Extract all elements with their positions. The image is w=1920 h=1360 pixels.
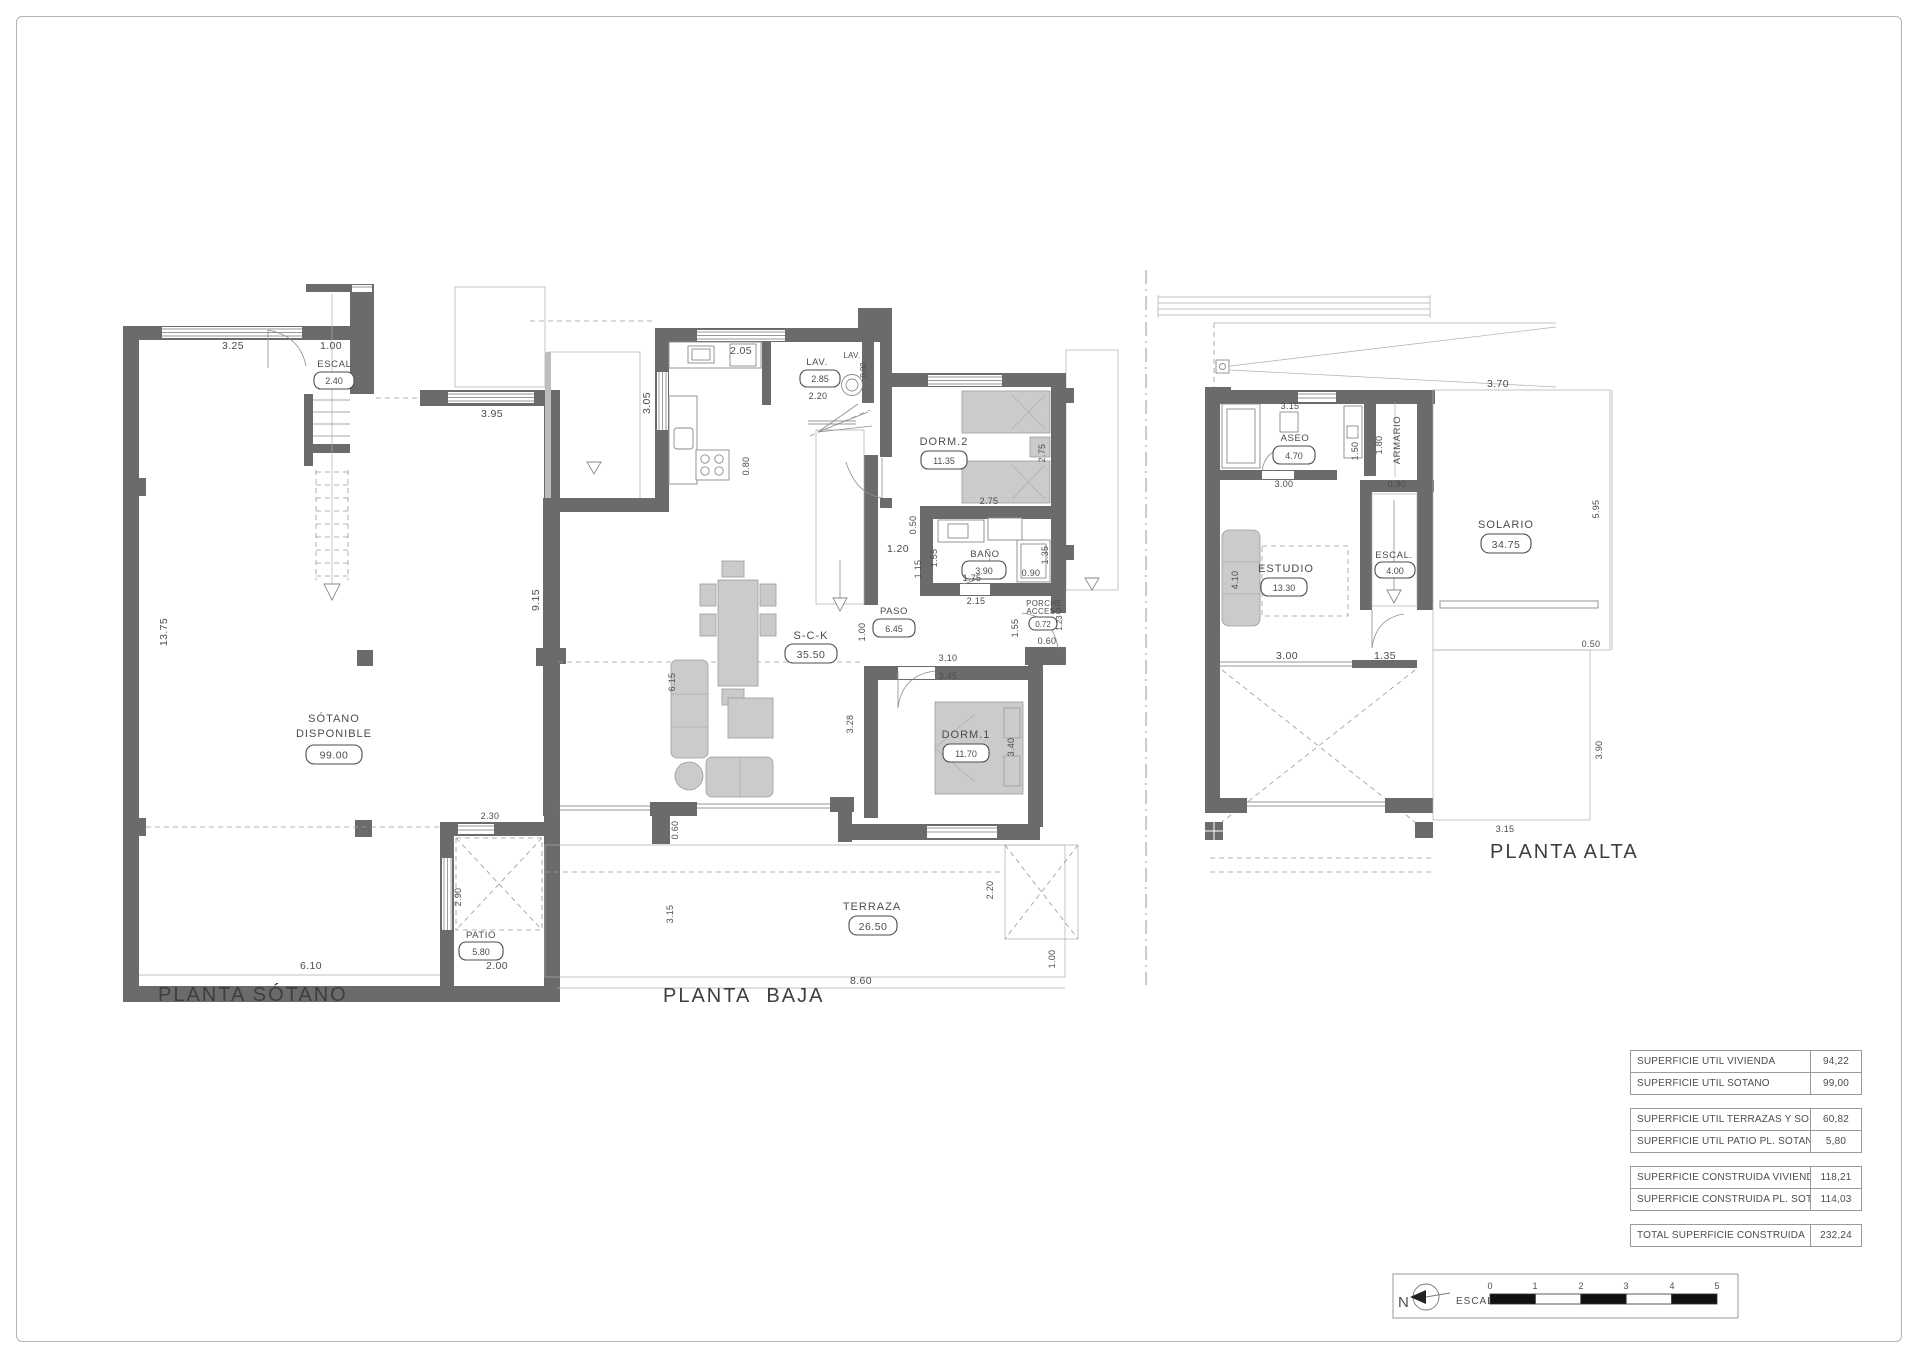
area-value: 0.72 — [1035, 620, 1051, 629]
dining-table — [700, 561, 776, 705]
plan-title-baja: PLANTA BAJA — [663, 985, 824, 1007]
area-value: 99.00 — [320, 750, 349, 762]
dim-label: 6.15 — [667, 673, 677, 692]
table-row-label: SUPERFICIE CONSTRUIDA VIVIENDA — [1631, 1172, 1810, 1183]
room-label-escal: ESCAL. — [1375, 550, 1412, 561]
dim-label: 3.05 — [641, 392, 653, 414]
dim-label: 3.25 — [222, 340, 244, 352]
dim-label: 1.35 — [1040, 546, 1050, 565]
dim-label: 3.95 — [481, 408, 503, 420]
dim-label: 5.95 — [1591, 500, 1601, 519]
dim-label: 9.15 — [530, 589, 542, 611]
table-group-total: TOTAL SUPERFICIE CONSTRUIDA 232,24 — [1630, 1224, 1862, 1247]
dim-label: 2.30 — [481, 811, 500, 821]
dim-label: 3.15 — [665, 905, 675, 924]
side-table — [675, 762, 703, 790]
table-row: SUPERFICIE ÚTIL VIVIENDA 94,22 — [1631, 1051, 1861, 1072]
room-label-lav: LAV. — [806, 357, 827, 368]
dim-label: 3.15 — [1281, 401, 1300, 411]
room-label-acceso: ACCESO — [1026, 607, 1061, 616]
plan-sotano: 3.25 1.00 ESCAL. 2.40 3.95 13.75 9.15 SÓ… — [123, 284, 560, 1006]
surface-areas-table: SUPERFICIE ÚTIL VIVIENDA 94,22 SUPERFICI… — [1630, 1050, 1862, 1260]
room-label-patio: PATIO — [466, 930, 496, 941]
dim-label: 2.15 — [967, 596, 986, 606]
table-row: TOTAL SUPERFICIE CONSTRUIDA 232,24 — [1631, 1225, 1861, 1246]
dim-label: 3.90 — [1594, 741, 1604, 760]
scale-tick: 2 — [1578, 1281, 1583, 1291]
table-group-construida: SUPERFICIE CONSTRUIDA VIVIENDA 118,21 SU… — [1630, 1166, 1862, 1211]
dim-label: 0.60 — [1038, 636, 1057, 646]
dim-label: 0.50 — [908, 516, 918, 535]
area-value: 2.40 — [325, 376, 343, 386]
scale-tick: 1 — [1532, 1281, 1537, 1291]
area-value: 11.70 — [955, 749, 977, 759]
room-label-sck: S-C-K — [794, 630, 829, 642]
column — [1415, 822, 1433, 838]
column — [357, 650, 373, 666]
area-value: 13.30 — [1273, 583, 1296, 593]
dim-label: 1.20 — [887, 543, 909, 555]
area-value: 35.50 — [797, 649, 826, 661]
dim-label: 3.28 — [845, 715, 855, 734]
scale-bar: N ESCALA : 0 1 2 3 4 5 — [1393, 1274, 1738, 1318]
dim-label: 3.45 — [939, 671, 958, 681]
table-row-label: SUPERFICIE CONSTRUIDA PL. SÓTANO — [1631, 1194, 1810, 1205]
dim-label: 1.55 — [929, 549, 939, 568]
dim-label: 2.75 — [980, 496, 999, 506]
graphic-scale — [1490, 1294, 1717, 1304]
dim-label: 2.90 — [453, 888, 463, 907]
dim-label: 0.90 — [1388, 479, 1407, 489]
area-value: 11.35 — [933, 456, 955, 466]
dim-label: 3.15 — [1496, 824, 1515, 834]
dim-label: 1.50 — [1350, 442, 1360, 461]
dim-label: 2.75 — [1037, 444, 1047, 463]
table-row: SUPERFICIE ÚTIL SÓTANO 99,00 — [1631, 1072, 1861, 1094]
area-value: 26.50 — [859, 921, 888, 933]
dim-label: 1.00 — [320, 340, 342, 352]
dim-label: 0.80 — [741, 457, 751, 476]
table-group-exterior: SUPERFICIE ÚTIL TERRAZAS Y SOLARIO 60,82… — [1630, 1108, 1862, 1153]
dim-label: 1.80 — [1374, 436, 1384, 455]
dim-label: 2.05 — [730, 345, 752, 357]
cooktop-icon — [696, 450, 729, 480]
dim-label: 1.00 — [1047, 950, 1057, 969]
room-label-dorm1: DORM.1 — [942, 729, 991, 741]
area-value: 4.00 — [1386, 566, 1404, 576]
table-group-util: SUPERFICIE ÚTIL VIVIENDA 94,22 SUPERFICI… — [1630, 1050, 1862, 1095]
plan-alta: 3.70 3.15 ASEO 4.70 1.50 ARMARIO 1.80 0.… — [1158, 295, 1639, 872]
table-row-label: SUPERFICIE ÚTIL TERRAZAS Y SOLARIO — [1631, 1114, 1810, 1125]
dim-label: 0.90 — [1022, 568, 1041, 578]
room-label-aseo: ASEO — [1281, 433, 1310, 444]
dim-label: 3.40 — [1006, 738, 1016, 757]
roof-edge-lines — [1158, 295, 1430, 318]
area-value: 4.70 — [1285, 451, 1303, 461]
patio-open-hatch — [456, 838, 542, 930]
room-label-solario: SOLARIO — [1478, 519, 1534, 531]
dim-label: 4.10 — [1230, 571, 1240, 590]
room-label-sotano2: DISPONIBLE — [296, 728, 372, 740]
table-row-label: TOTAL SUPERFICIE CONSTRUIDA — [1631, 1230, 1810, 1241]
table-row: SUPERFICIE ÚTIL PATIO PL. SÓTANO 5,80 — [1631, 1130, 1861, 1152]
scale-tick: 0 — [1487, 1281, 1492, 1291]
dim-label: 3.00 — [1275, 479, 1294, 489]
table-row-value: 5,80 — [1810, 1131, 1861, 1152]
table-row-value: 232,24 — [1810, 1225, 1861, 1246]
table-row: SUPERFICIE ÚTIL TERRAZAS Y SOLARIO 60,82 — [1631, 1109, 1861, 1130]
table-row: SUPERFICIE CONSTRUIDA VIVIENDA 118,21 — [1631, 1167, 1861, 1188]
dim-label: 1.15 — [913, 560, 923, 579]
dim-label: 6.10 — [300, 960, 322, 972]
dim-label: 0.80 — [859, 362, 868, 378]
room-label-estudio: ESTUDIO — [1258, 563, 1314, 575]
stair-direction-arrow — [324, 584, 340, 600]
scale-tick: 5 — [1714, 1281, 1719, 1291]
dim-label: 1.35 — [1374, 650, 1396, 662]
table-row-value: 99,00 — [1810, 1073, 1861, 1094]
table-row-value: 118,21 — [1810, 1167, 1861, 1188]
estudio-sofa — [1222, 530, 1260, 626]
room-label-lav2: LAV. — [843, 351, 860, 360]
solario-bench — [1440, 601, 1598, 608]
dim-label: 0.60 — [670, 821, 680, 840]
north-label: N — [1398, 1294, 1410, 1311]
scale-tick: 3 — [1623, 1281, 1628, 1291]
table-row-label: SUPERFICIE ÚTIL PATIO PL. SÓTANO — [1631, 1136, 1810, 1147]
room-label-sotano: SÓTANO — [308, 712, 360, 725]
dim-label: 3.70 — [1487, 378, 1509, 390]
table-row: SUPERFICIE CONSTRUIDA PL. SÓTANO 114,03 — [1631, 1188, 1861, 1210]
dim-label: 3.10 — [939, 653, 958, 663]
room-label-dorm2: DORM.2 — [920, 436, 969, 448]
main-stair — [810, 404, 872, 611]
plan-baja: 2.05 3.05 0.80 LAV. 2.85 2.20 LAV. 0.80 … — [530, 270, 1146, 1007]
room-label-terraza: TERRAZA — [843, 901, 901, 913]
exterior-entry-stair — [548, 352, 640, 504]
table-row-label: SUPERFICIE ÚTIL VIVIENDA — [1631, 1056, 1810, 1067]
dim-label: 1.55 — [1010, 619, 1020, 638]
column — [355, 820, 372, 837]
dim-label: 3.00 — [1276, 650, 1298, 662]
dim-label: 2.20 — [809, 391, 828, 401]
area-value: 6.45 — [885, 624, 903, 634]
solario-deck-lower — [1433, 650, 1590, 820]
room-label-escal: ESCAL. — [317, 359, 354, 370]
table-row-value: 94,22 — [1810, 1051, 1861, 1072]
room-label-bano: BAÑO — [970, 549, 999, 560]
area-value: 34.75 — [1492, 539, 1521, 551]
plan-title-alta: PLANTA ALTA — [1490, 841, 1639, 863]
dim-label: 2.00 — [486, 960, 508, 972]
dim-label: 13.75 — [158, 618, 170, 646]
area-value: 5.80 — [472, 947, 490, 957]
exterior-stair — [455, 287, 545, 387]
dim-label: 1.23 — [1055, 615, 1064, 630]
room-label-armario: ARMARIO — [1392, 416, 1403, 465]
dim-label: 2.20 — [985, 881, 995, 900]
plan-title-sotano: PLANTA SÓTANO — [158, 983, 348, 1006]
room-label-paso: PASO — [880, 606, 908, 617]
scale-tick: 4 — [1669, 1281, 1674, 1291]
pergola-hatch — [1005, 845, 1078, 939]
dim-label: 1.00 — [857, 623, 867, 642]
table-row-value: 60,82 — [1810, 1109, 1861, 1130]
north-compass-icon — [1410, 1284, 1450, 1310]
coffee-table — [728, 698, 773, 738]
area-value: 2.85 — [811, 374, 829, 384]
table-row-value: 114,03 — [1810, 1189, 1861, 1210]
table-row-label: SUPERFICIE ÚTIL SÓTANO — [1631, 1078, 1810, 1089]
dim-label: 0.50 — [1582, 639, 1601, 649]
dim-label: 1.75 — [963, 573, 982, 583]
terraza-deck — [545, 845, 1065, 977]
dim-label: 8.60 — [850, 975, 872, 987]
